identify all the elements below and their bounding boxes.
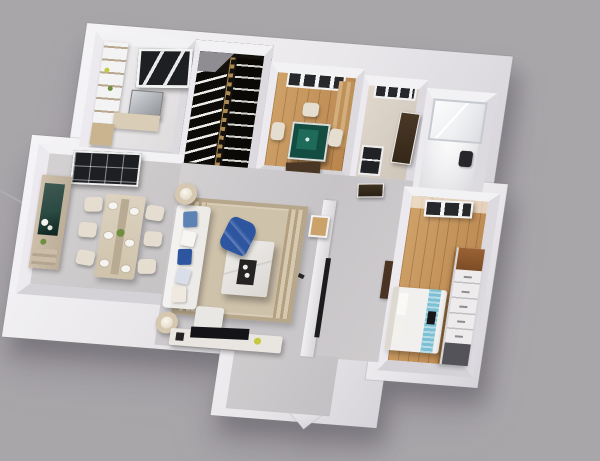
kitchen-counter xyxy=(112,112,160,131)
plate xyxy=(121,265,131,273)
sideboard-shelves xyxy=(31,248,57,266)
sofa-pillow-lightblue xyxy=(174,268,192,285)
console-plant-yellow xyxy=(253,337,261,344)
plate xyxy=(129,208,139,216)
sideboard-plant xyxy=(40,239,47,245)
kitchen-shelf-item-yellow xyxy=(104,67,110,72)
wardrobe-wood-top xyxy=(456,247,485,271)
room-kitchen xyxy=(78,32,196,161)
plate xyxy=(125,239,135,247)
hall-floor-extension xyxy=(226,349,339,417)
room-mahjong xyxy=(255,62,365,180)
wardrobe-dark-panel xyxy=(442,342,471,366)
mahjong-chair-top xyxy=(302,102,320,117)
dining-chair xyxy=(143,231,163,247)
console-dark-box xyxy=(175,332,184,341)
dining-chair xyxy=(78,222,98,238)
kitchen-shelf-plant xyxy=(107,86,113,91)
scene-3d-floorplan xyxy=(0,0,600,453)
hall-picture-frame xyxy=(308,215,330,238)
dining-sideboard xyxy=(28,175,72,270)
plate xyxy=(99,259,109,267)
corridor-window xyxy=(373,84,417,101)
plate xyxy=(108,202,118,210)
dining-lattice-window xyxy=(70,150,142,187)
bedroom-window xyxy=(424,200,474,219)
sofa-pillow-cream xyxy=(172,286,187,302)
plate xyxy=(103,232,113,240)
sofa-pillow-blue xyxy=(183,211,197,228)
sofa-pillow-white xyxy=(180,230,197,247)
mahjong-chair-left xyxy=(270,122,286,141)
scene-background: { "image_type": "3d-apartment-floorplan-… xyxy=(0,0,600,453)
bathroom-glass-shower xyxy=(428,98,488,144)
coffee-table-tray xyxy=(236,259,257,285)
kitchen-counter-corner xyxy=(89,123,114,146)
dining-chair xyxy=(137,259,156,274)
hall-door-left xyxy=(357,183,384,197)
tv-panel xyxy=(190,326,249,339)
bathroom-toilet xyxy=(458,151,473,168)
sofa-pillow-navy xyxy=(177,249,192,265)
dining-chair xyxy=(144,204,165,221)
dining-chair xyxy=(84,197,103,212)
bed-pillow xyxy=(392,321,404,343)
kitchen-window xyxy=(136,48,193,88)
wardrobe-drawers xyxy=(445,269,482,344)
apartment-floorplan xyxy=(0,28,522,461)
room-dining xyxy=(16,143,184,305)
dining-chair xyxy=(75,249,96,267)
corridor-dark-window xyxy=(358,145,384,176)
bed-pillow xyxy=(396,293,408,315)
bedroom-bed xyxy=(384,286,447,354)
mahjong-table xyxy=(287,121,331,162)
